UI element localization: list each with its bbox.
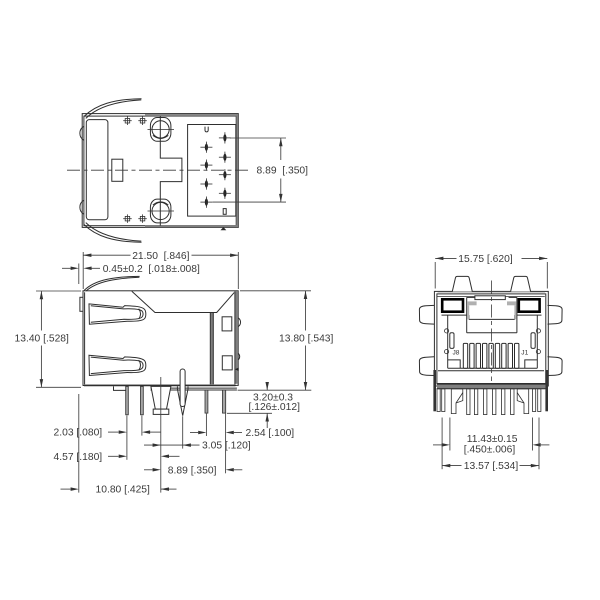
svg-text:8.89 [.350]: 8.89 [.350] [257,165,309,176]
svg-text:13.40 [.528]: 13.40 [.528] [15,334,70,345]
svg-text:13.80 [.543]: 13.80 [.543] [279,334,334,345]
svg-text:4.57 [.180]: 4.57 [.180] [54,452,103,463]
svg-text:[.450±.006]: [.450±.006] [464,445,516,456]
svg-text:8.89 [.350]: 8.89 [.350] [168,465,217,476]
svg-text:2.03 [.080]: 2.03 [.080] [54,428,103,439]
svg-text:3.05 [.120]: 3.05 [.120] [202,441,251,452]
svg-text:J1: J1 [521,350,528,357]
svg-text:2.54 [.100]: 2.54 [.100] [246,428,295,439]
svg-text:J8: J8 [453,350,460,357]
svg-text:10.80 [.425]: 10.80 [.425] [96,485,151,496]
svg-text:15.75 [.620]: 15.75 [.620] [458,254,513,265]
svg-text:0.45±0.2 [.018±.008]: 0.45±0.2 [.018±.008] [103,264,200,275]
svg-text:13.57 [.534]: 13.57 [.534] [464,461,519,472]
svg-text:[.126±.012]: [.126±.012] [249,402,301,413]
svg-text:21.50 [.846]: 21.50 [.846] [132,251,189,262]
